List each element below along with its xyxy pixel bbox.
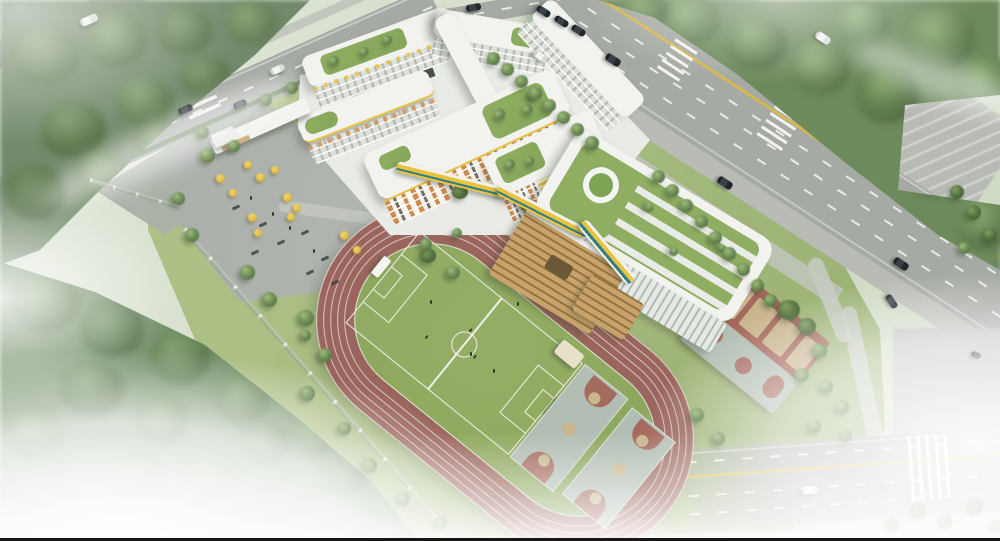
crosswalk xyxy=(907,433,954,502)
tree xyxy=(966,498,983,515)
tree xyxy=(571,123,584,136)
tree xyxy=(185,228,199,242)
court-center-circle xyxy=(609,460,629,480)
person xyxy=(313,249,315,253)
tree xyxy=(723,247,736,260)
tree xyxy=(709,231,722,244)
tree xyxy=(172,192,185,205)
court-center-circle xyxy=(559,420,579,440)
bleacher-stair xyxy=(544,254,575,281)
tree xyxy=(808,420,821,433)
golden-tree xyxy=(340,231,349,240)
person xyxy=(250,196,252,200)
car xyxy=(802,485,819,494)
golden-tree xyxy=(254,229,262,237)
tree xyxy=(840,430,852,442)
golden-tree xyxy=(256,173,265,182)
person xyxy=(517,302,519,306)
tree xyxy=(501,63,514,76)
golden-tree xyxy=(229,189,237,197)
golden-tree xyxy=(248,213,257,222)
golden-tree xyxy=(244,161,252,169)
person xyxy=(272,212,274,216)
aerial-campus-rendering xyxy=(0,0,1000,541)
tree xyxy=(543,99,556,112)
golden-tree xyxy=(293,204,301,212)
tree xyxy=(764,294,777,307)
tree xyxy=(983,228,997,242)
tree xyxy=(695,215,708,228)
tree xyxy=(262,292,277,307)
tree xyxy=(338,422,351,435)
tree xyxy=(680,199,693,212)
tree xyxy=(958,242,970,254)
tree xyxy=(885,518,899,532)
tree xyxy=(938,514,953,529)
tree xyxy=(988,520,1000,534)
golden-tree xyxy=(283,193,292,202)
person xyxy=(289,226,291,230)
person xyxy=(430,300,432,304)
tree xyxy=(690,408,704,422)
tree xyxy=(298,310,314,326)
tree xyxy=(286,82,298,94)
tree xyxy=(737,263,750,276)
tree xyxy=(487,52,500,65)
tree xyxy=(420,248,436,263)
tree xyxy=(835,400,849,414)
tree xyxy=(300,386,315,401)
tree xyxy=(362,458,377,473)
golden-tree xyxy=(353,246,361,254)
tree xyxy=(260,94,272,106)
person xyxy=(493,369,495,373)
tree xyxy=(200,148,215,163)
tree xyxy=(396,492,410,506)
tree xyxy=(196,126,209,139)
tree xyxy=(751,279,764,292)
tree xyxy=(300,330,311,341)
tree xyxy=(557,111,570,124)
tree xyxy=(712,432,725,445)
tree xyxy=(910,503,926,519)
golden-tree xyxy=(271,166,279,174)
person xyxy=(470,352,472,356)
yellow-center-line xyxy=(687,453,1000,479)
tree xyxy=(966,205,981,220)
tree xyxy=(812,343,827,358)
tree xyxy=(434,516,447,529)
tree xyxy=(446,266,460,279)
golden-tree xyxy=(287,213,295,221)
tree xyxy=(318,348,332,362)
tree xyxy=(240,265,255,280)
tree xyxy=(798,318,816,335)
tree xyxy=(820,380,833,393)
tree xyxy=(452,228,462,238)
tree xyxy=(652,170,665,183)
tree xyxy=(950,185,964,199)
tree xyxy=(666,184,679,197)
tree xyxy=(778,300,800,320)
tree xyxy=(585,136,599,150)
tree xyxy=(529,87,542,100)
tree xyxy=(228,140,240,152)
tree xyxy=(795,368,809,382)
tree xyxy=(420,238,432,250)
golden-tree xyxy=(216,174,225,183)
tree xyxy=(515,75,528,88)
